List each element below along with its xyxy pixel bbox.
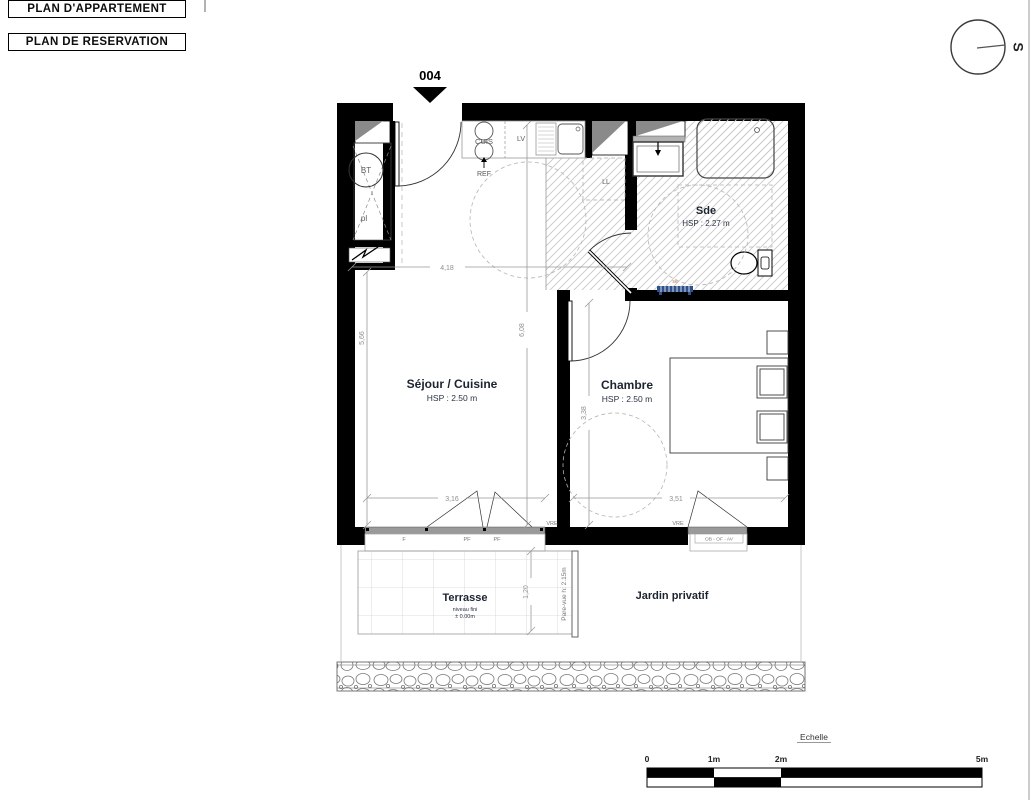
shutter-vre-label: VRE bbox=[672, 521, 684, 527]
scale-bar-title: Echelle bbox=[800, 732, 828, 742]
compass-icon: S bbox=[951, 20, 1026, 74]
terrasse-name: Terrasse bbox=[442, 592, 487, 604]
scale-tick-2m: 2m bbox=[775, 754, 788, 764]
sde-room-name: Sde bbox=[696, 205, 716, 217]
sink-icon bbox=[536, 123, 583, 155]
toilet-icon bbox=[731, 250, 772, 276]
nightstand-icon bbox=[767, 331, 788, 354]
pare-vue-screen bbox=[572, 551, 578, 637]
chambre-room-name: Chambre bbox=[601, 378, 653, 392]
shower-tray-icon bbox=[697, 119, 774, 178]
dim-mid-height: 6,08 bbox=[519, 323, 526, 337]
sejour-room-name: Séjour / Cuisine bbox=[407, 377, 498, 391]
dim-left-height: 5,66 bbox=[359, 331, 366, 345]
jardin-name: Jardin privatif bbox=[636, 590, 709, 602]
scale-tick-0: 0 bbox=[645, 754, 650, 764]
sejour-room-hsp: HSP : 2.50 m bbox=[427, 393, 477, 403]
closet-label: pl bbox=[361, 214, 367, 223]
floor-plan-drawing: S 004 bbox=[0, 0, 1032, 800]
stone-wall-band bbox=[337, 662, 805, 691]
washer-label: LL bbox=[602, 179, 610, 186]
dim-chambre-height: 3,38 bbox=[581, 406, 588, 420]
compass-south-label: S bbox=[1010, 42, 1026, 51]
floor-plan-page: PLAN D'APPARTEMENT PLAN DE RESERVATION bbox=[0, 0, 1032, 800]
turning-circle bbox=[563, 413, 667, 517]
window-pf-label: PF bbox=[493, 537, 501, 543]
chambre-door-arc bbox=[570, 301, 630, 361]
water-heater-label: BT bbox=[361, 166, 371, 175]
scale-bar: Echelle 0 1m 2m 5m bbox=[645, 732, 989, 787]
dim-chambre-width: 3,51 bbox=[669, 496, 683, 503]
terrasse-note2: ± 0.00m bbox=[455, 614, 475, 620]
cooker-label: CUIS bbox=[475, 137, 493, 146]
dishwasher-label: LV bbox=[517, 136, 525, 143]
entrance-arrow-icon bbox=[413, 87, 447, 103]
sejour-window: F PF PF VRE bbox=[365, 491, 558, 551]
shutter-vre-label: VRE bbox=[546, 521, 558, 527]
window-type-label: OB - OF - AV bbox=[705, 537, 734, 543]
room-chambre: Chambre HSP : 2.50 m bbox=[563, 331, 788, 517]
terrasse: Pare-vue h: 2.15m Terrasse niveau fini ±… bbox=[341, 545, 801, 661]
pare-vue-label: Pare-vue h: 2.15m bbox=[561, 567, 568, 620]
chambre-room-hsp: HSP : 2.50 m bbox=[602, 394, 652, 404]
washbasin-icon bbox=[633, 142, 683, 176]
scale-tick-1m: 1m bbox=[708, 754, 721, 764]
entrance-door bbox=[395, 122, 461, 265]
scale-tick-5m: 5m bbox=[976, 754, 989, 764]
dim-sejour-width: 3,16 bbox=[445, 496, 459, 503]
fridge-label: REF bbox=[477, 171, 491, 178]
nightstand-icon bbox=[767, 457, 788, 480]
terrasse-note1: niveau fini bbox=[453, 607, 478, 613]
lot-marker: 004 bbox=[413, 68, 447, 103]
dim-top-width: 4,18 bbox=[440, 265, 454, 272]
window-pf-label: PF bbox=[463, 537, 471, 543]
bed-icon bbox=[670, 358, 788, 453]
sde-room-hsp: HSP : 2.27 m bbox=[682, 219, 730, 228]
lot-number: 004 bbox=[419, 68, 441, 83]
